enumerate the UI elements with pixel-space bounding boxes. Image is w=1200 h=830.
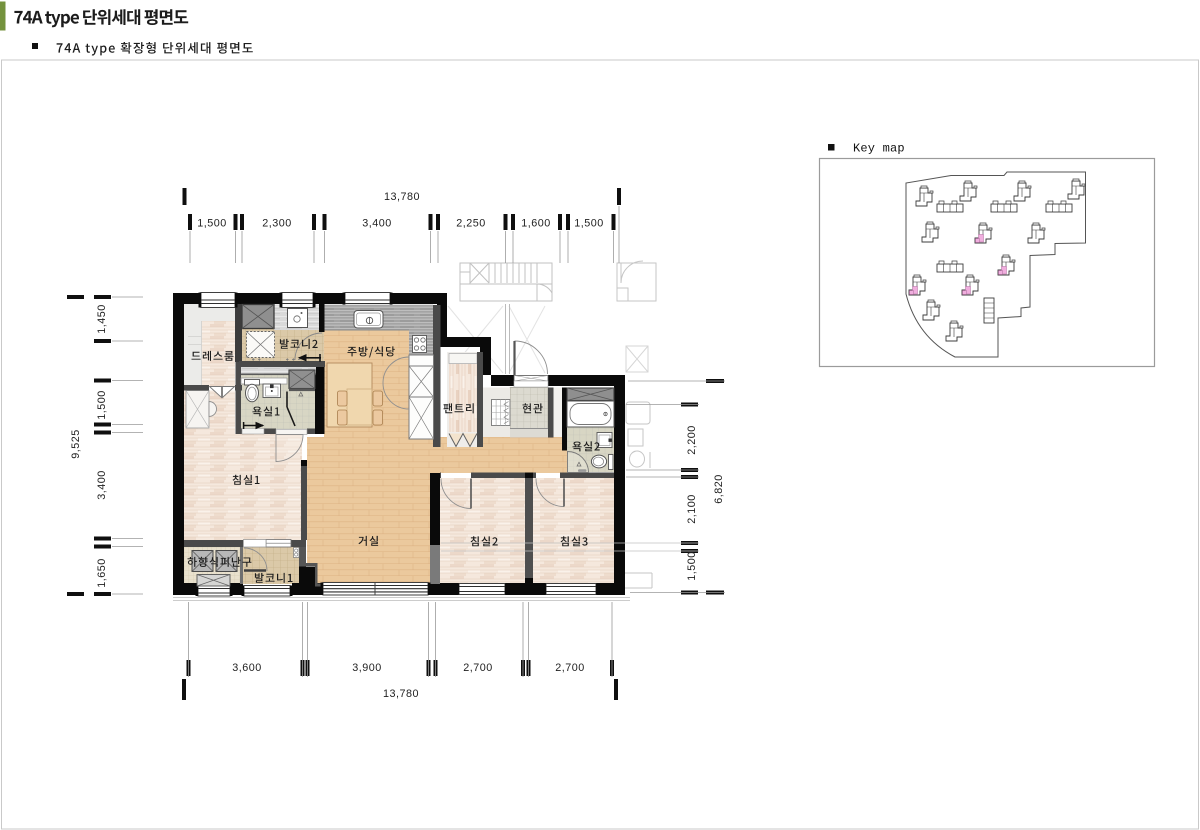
svg-text:13,780: 13,780 [384, 191, 420, 203]
svg-text:3,400: 3,400 [96, 470, 108, 500]
svg-text:2,700: 2,700 [555, 662, 585, 674]
svg-text:1,600: 1,600 [521, 218, 551, 230]
svg-text:2,250: 2,250 [456, 218, 486, 230]
svg-text:2,300: 2,300 [262, 218, 292, 230]
svg-text:2,100: 2,100 [686, 494, 698, 524]
svg-text:1,650: 1,650 [96, 558, 108, 588]
svg-text:1,500: 1,500 [686, 551, 698, 581]
svg-text:3,900: 3,900 [352, 662, 382, 674]
svg-text:9,525: 9,525 [70, 429, 82, 459]
svg-text:1,500: 1,500 [96, 390, 108, 420]
svg-text:1,450: 1,450 [96, 304, 108, 334]
svg-text:3,400: 3,400 [362, 218, 392, 230]
svg-text:3,600: 3,600 [232, 662, 262, 674]
svg-text:1,500: 1,500 [197, 218, 227, 230]
svg-text:2,700: 2,700 [463, 662, 493, 674]
svg-text:Key map: Key map [853, 141, 905, 155]
svg-text:1,500: 1,500 [574, 218, 604, 230]
svg-text:6,820: 6,820 [713, 474, 725, 504]
svg-text:13,780: 13,780 [383, 688, 419, 700]
svg-text:2,200: 2,200 [686, 425, 698, 455]
